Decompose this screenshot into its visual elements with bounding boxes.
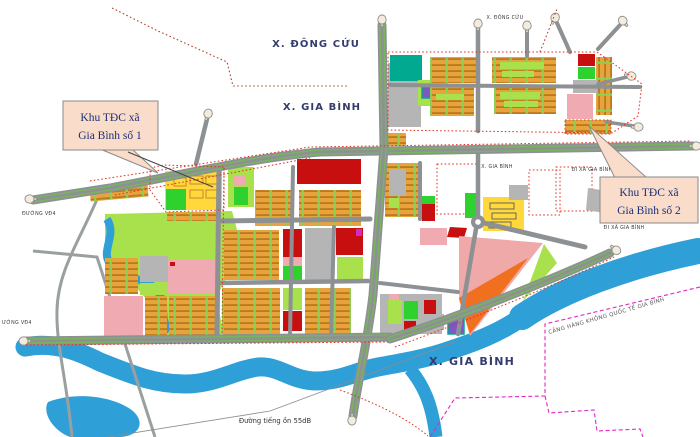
callout-site2-line2: Gia Bình số 2 bbox=[617, 204, 681, 217]
road-end-balloon-icon bbox=[523, 21, 531, 33]
road bbox=[222, 219, 370, 221]
label-duong-vd4-upper: ĐƯỜNG VĐ4 bbox=[22, 210, 56, 217]
planning-map: X. ĐÔNG CỨU X. GIA BÌNH X. ĐÔNG CỨU X. G… bbox=[0, 0, 700, 437]
parcel bbox=[500, 62, 544, 69]
parcel bbox=[234, 187, 248, 205]
parcel bbox=[305, 288, 351, 335]
road bbox=[390, 85, 640, 87]
parcel bbox=[168, 260, 216, 293]
callout-site1-line2: Gia Bình số 1 bbox=[78, 129, 142, 142]
road bbox=[598, 25, 620, 49]
parcel bbox=[104, 296, 143, 336]
parcel-future bbox=[529, 170, 560, 215]
parcel bbox=[390, 55, 422, 81]
label-commune-dong-cuu: X. ĐÔNG CỨU bbox=[272, 37, 360, 50]
parcel bbox=[169, 296, 216, 336]
river-pond bbox=[46, 396, 139, 437]
roundabout-center bbox=[475, 219, 481, 225]
parcels-east bbox=[380, 163, 614, 336]
parcel bbox=[436, 94, 464, 100]
parcel bbox=[492, 57, 556, 83]
parcel bbox=[424, 300, 436, 314]
road bbox=[557, 23, 570, 52]
road bbox=[218, 281, 368, 283]
parcel bbox=[283, 311, 302, 331]
label-commune-gia-binh-upper: X. GIA BÌNH bbox=[283, 100, 361, 113]
parcel bbox=[578, 67, 595, 79]
parcel bbox=[170, 262, 175, 266]
parcel bbox=[430, 87, 474, 116]
road-end-balloon-icon bbox=[631, 123, 643, 131]
parcel bbox=[420, 228, 447, 245]
label-noise-line: Đường tiếng ồn 55dB bbox=[239, 417, 312, 425]
parcel bbox=[105, 258, 138, 294]
label-commune-gia-binh-bottom: X. GIA BÌNH bbox=[429, 355, 515, 368]
parcel bbox=[422, 196, 435, 204]
parcel bbox=[234, 176, 246, 185]
parcel bbox=[567, 94, 593, 119]
road bbox=[380, 283, 458, 292]
parcel-tdc2-orange bbox=[565, 120, 611, 134]
parcel bbox=[166, 189, 186, 210]
road-south-east-west bbox=[26, 337, 390, 341]
parcel bbox=[500, 92, 540, 99]
callout-box bbox=[63, 101, 158, 150]
parcel bbox=[504, 101, 538, 107]
parcel bbox=[297, 159, 361, 184]
parcel bbox=[388, 300, 402, 324]
parcel bbox=[430, 57, 476, 83]
parcel bbox=[145, 296, 167, 336]
parcel bbox=[224, 230, 279, 280]
parcel bbox=[389, 169, 406, 196]
airport-boundary-dashed bbox=[545, 396, 643, 437]
road-end-balloon-icon bbox=[474, 19, 482, 31]
label-commune-dong-cuu-small: X. ĐÔNG CỨU bbox=[487, 14, 524, 21]
parcel bbox=[305, 228, 332, 280]
callout-site1-line1: Khu TĐC xã bbox=[80, 112, 139, 124]
parcel bbox=[222, 288, 280, 335]
parcel bbox=[389, 294, 399, 300]
river-branch bbox=[410, 369, 436, 437]
parcel bbox=[140, 256, 168, 282]
parcel bbox=[389, 198, 399, 208]
parcel bbox=[167, 212, 219, 221]
label-commune-gia-binh-small: X. GIA BÌNH bbox=[481, 163, 513, 170]
parcel bbox=[337, 257, 363, 280]
parcel bbox=[404, 301, 418, 319]
parcel bbox=[509, 185, 528, 200]
parcel bbox=[502, 71, 534, 77]
parcel bbox=[447, 227, 467, 238]
map-canvas: X. ĐÔNG CỨU X. GIA BÌNH X. ĐÔNG CỨU X. G… bbox=[0, 0, 700, 437]
label-duong-vd4-lower: ƯỜNG VĐ4 bbox=[2, 319, 32, 326]
parcel bbox=[140, 283, 168, 295]
callout-site2: Khu TĐC xã Gia Bình số 2 bbox=[589, 126, 698, 223]
callout-site2-line1: Khu TĐC xã bbox=[619, 187, 678, 199]
parcel bbox=[356, 229, 362, 236]
parcel bbox=[422, 204, 435, 221]
label-di-xa-gia-binh-lower: ĐI XÃ GIA BÌNH bbox=[604, 224, 645, 231]
parcel bbox=[465, 193, 476, 218]
parcel bbox=[494, 87, 556, 114]
parcel bbox=[578, 54, 595, 66]
label-di-xa-gia-binh-upper: ĐI XÃ GIA BÌNH bbox=[572, 166, 613, 173]
road bbox=[217, 166, 219, 337]
road bbox=[196, 119, 207, 164]
